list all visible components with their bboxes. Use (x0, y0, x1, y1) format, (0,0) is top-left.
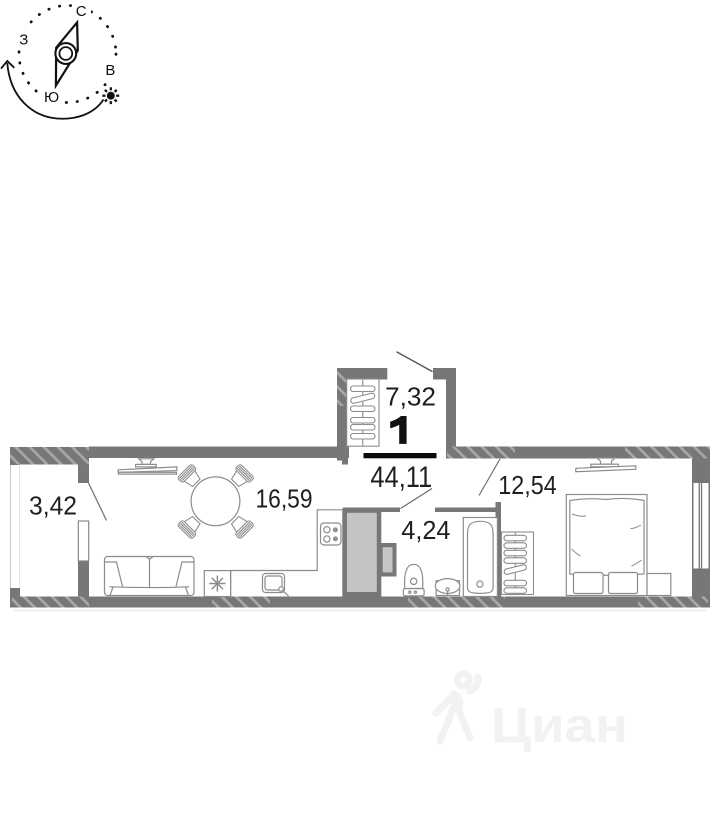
svg-text:Ю: Ю (44, 89, 59, 106)
svg-text:12,54: 12,54 (498, 470, 556, 500)
svg-text:В: В (105, 62, 115, 79)
svg-text:Циан: Циан (491, 699, 628, 753)
svg-text:С: С (76, 3, 87, 20)
svg-text:З: З (19, 32, 28, 49)
svg-text:44,11: 44,11 (370, 461, 432, 494)
svg-text:7,32: 7,32 (385, 381, 436, 411)
svg-text:3,42: 3,42 (29, 491, 77, 521)
svg-text:4,24: 4,24 (401, 515, 450, 545)
svg-text:16,59: 16,59 (256, 484, 313, 514)
